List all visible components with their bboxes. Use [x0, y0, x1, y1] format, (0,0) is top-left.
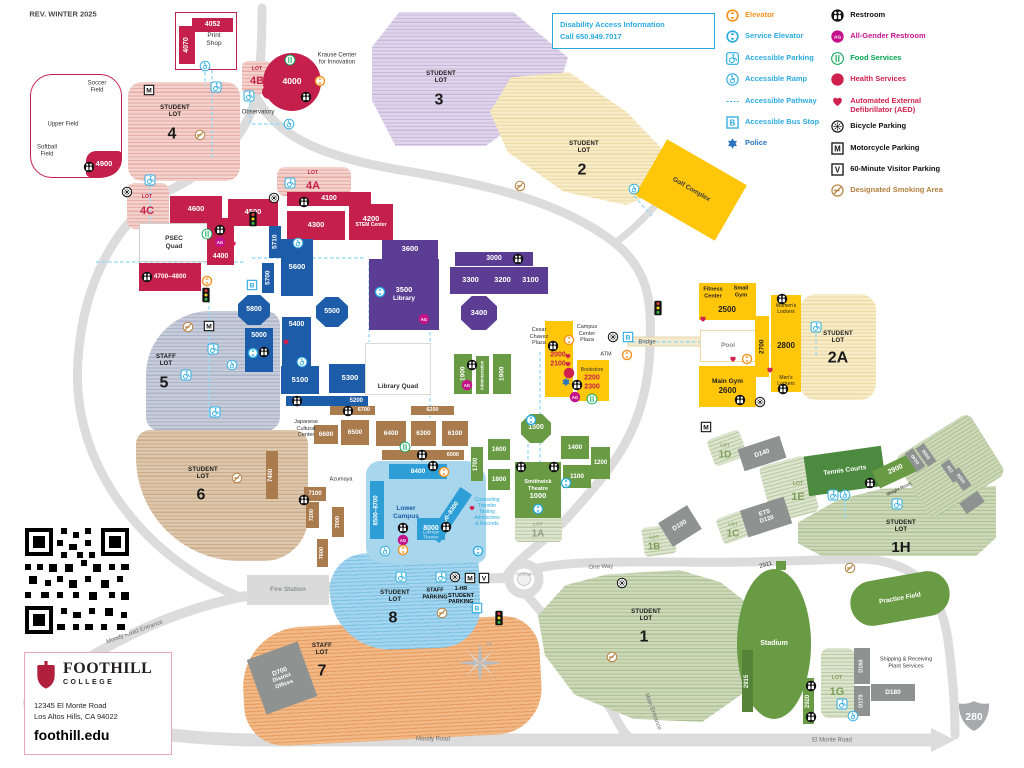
all-gender-restroom-icon: AG	[215, 237, 226, 248]
legend-item-label: Food Services	[850, 53, 901, 62]
restroom-icon	[831, 9, 844, 24]
legend-item-accessible-ramp: Accessible Ramp	[726, 74, 819, 88]
accessible-ramp-icon	[629, 184, 640, 195]
legend-item-label: Service Elevator	[745, 31, 803, 40]
accessible-parking-icon	[726, 52, 739, 67]
legend-item-label: Health Services	[850, 74, 906, 83]
label-print-shop: PrintShop	[206, 32, 221, 48]
building-2915: 2915	[742, 650, 753, 712]
label-building-2800: 2800	[777, 341, 795, 351]
building-d180: D180	[871, 684, 915, 701]
aed-icon	[469, 505, 476, 512]
svg-text:AG: AG	[464, 383, 470, 388]
building-1700: 1700	[471, 447, 483, 481]
building-1200: 1200	[591, 447, 610, 479]
accessible-bus-stop-icon: B	[623, 332, 634, 343]
lot-label: STUDENTLOT	[160, 105, 190, 119]
legend-item-police: Police	[726, 138, 819, 152]
elevator-icon	[439, 467, 450, 478]
food-services-icon	[285, 55, 296, 66]
building-6500: 6500	[341, 420, 369, 445]
service-elevator-icon	[375, 287, 386, 298]
label-revision: REV. WINTER 2025	[29, 9, 96, 18]
visitor-parking-icon: V	[479, 573, 490, 584]
label-counseling: CounselingTransferTestingAdmissions& Rec…	[474, 497, 500, 527]
legend-item-food-services: Food Services	[831, 53, 943, 67]
svg-text:M: M	[467, 575, 473, 582]
label-visitor-parking-1hr: 1-HRSTUDENTPARKING	[448, 586, 474, 606]
accessible-ramp-icon	[840, 490, 851, 501]
svg-text:AG: AG	[400, 538, 406, 543]
disability-info-line1: Disability Access Information	[560, 19, 707, 31]
restroom-icon	[735, 395, 746, 406]
lot-label: STAFFLOT	[156, 354, 176, 368]
food-services-icon	[587, 394, 598, 405]
legend-item-label: Accessible Pathway	[745, 96, 817, 105]
building-administration: Administration	[476, 356, 489, 394]
traffic-light-icon	[202, 287, 211, 303]
restroom-icon	[549, 462, 560, 473]
service-elevator-icon	[726, 30, 739, 45]
legend-item-label: Elevator	[745, 10, 775, 19]
map-legend: ElevatorService ElevatorAccessible Parki…	[726, 10, 943, 200]
building-1600: 1600	[488, 439, 510, 460]
building-7400: 7400	[266, 451, 278, 499]
label-fountain: Fountain	[516, 571, 534, 576]
college-url: foothill.edu	[34, 727, 162, 743]
label-krause-center: Krause Centerfor Innovation	[318, 53, 357, 68]
legend-item-restroom: Restroom	[831, 10, 943, 24]
all-gender-restroom-icon: AG	[831, 30, 844, 45]
label-bridge: Bridge	[638, 339, 655, 346]
college-sub: COLLEGE	[63, 679, 152, 686]
elevator-icon	[622, 350, 633, 361]
legend-item-label: Accessible Parking	[745, 53, 814, 62]
restroom-icon	[299, 197, 310, 208]
legend-item-health-services: Health Services	[831, 74, 943, 88]
smoking-area-icon	[183, 322, 194, 333]
svg-text:V: V	[835, 165, 841, 174]
lot-label-number: 1A	[532, 529, 545, 540]
svg-text:N: N	[487, 641, 491, 648]
college-address-2: Los Altos Hills, CA 94022	[34, 712, 162, 723]
accessible-parking-icon	[145, 175, 156, 186]
legend-item-label: Automated ExternalDefibrillator (AED)	[850, 96, 921, 115]
label-japanese-cultural-center: JapaneseCulturalCenter	[294, 419, 318, 439]
bicycle-parking-icon	[122, 187, 133, 198]
svg-text:B: B	[730, 118, 736, 127]
lot-label: LOT	[832, 676, 843, 682]
legend-item-label: Bicycle Parking	[850, 121, 906, 130]
legend-column-2: RestroomAGAll-Gender RestroomFood Servic…	[831, 10, 943, 200]
label-shipping-receiving: Shipping & ReceivingPlant Services	[880, 656, 932, 669]
accessible-ramp-icon	[284, 119, 295, 130]
label-upper-field: Upper Field	[47, 121, 78, 128]
restroom-icon	[777, 294, 788, 305]
food-services-icon	[202, 229, 213, 240]
restroom-icon	[398, 523, 409, 534]
building-fire-station: Fire Station	[247, 575, 329, 605]
restroom-icon	[215, 225, 226, 236]
legend-item-elevator: Elevator	[726, 10, 819, 24]
lot-label: STUDENTLOT	[426, 71, 456, 85]
smoking-area-icon	[195, 130, 206, 141]
accessible-parking-icon	[837, 699, 848, 710]
motorcycle-parking-icon: M	[204, 321, 215, 332]
accessible-ramp-icon	[293, 238, 304, 249]
accessible-parking-icon	[208, 344, 219, 355]
svg-text:B: B	[626, 334, 631, 341]
accessible-ramp-icon	[726, 73, 739, 88]
restroom-icon	[417, 450, 428, 461]
legend-item-bicycle-parking: Bicycle Parking	[831, 121, 943, 135]
restroom-icon	[428, 461, 439, 472]
elevator-icon	[398, 545, 409, 556]
police-icon	[726, 137, 739, 152]
elevator-icon	[202, 276, 213, 287]
svg-text:M: M	[834, 144, 841, 153]
college-name: FOOTHILL	[63, 661, 152, 677]
lot-label-number: 1D	[719, 450, 732, 461]
legend-item-motorcycle-parking: MMotorcycle Parking	[831, 143, 943, 157]
label-building-2500: 2500	[718, 305, 736, 315]
building-6200: 6200	[411, 406, 454, 415]
restroom-icon	[516, 462, 527, 473]
motorcycle-parking-icon: M	[831, 142, 844, 157]
label-small-gym: SmallGym	[734, 285, 749, 298]
traffic-light-icon	[654, 300, 663, 316]
service-elevator-icon	[533, 504, 544, 515]
restroom-icon	[548, 341, 559, 352]
bicycle-parking-icon	[269, 193, 280, 204]
building-1400: 1400	[561, 436, 589, 459]
legend-item-all-gender-restroom: AGAll-Gender Restroom	[831, 31, 943, 45]
service-elevator-icon	[473, 546, 484, 557]
accessible-ramp-icon	[227, 360, 238, 371]
compass-icon: N	[453, 639, 507, 685]
college-address-1: 12345 El Monte Road	[34, 701, 162, 712]
building-4200-stem: 4200STEM Center	[349, 204, 393, 240]
lot-label: LOT	[308, 171, 319, 177]
aed-icon	[565, 361, 572, 368]
label-staff-parking: STAFFPARKING	[423, 587, 448, 600]
accessible-parking-icon	[285, 178, 296, 189]
smoking-area-icon	[845, 563, 856, 574]
bicycle-parking-icon	[617, 578, 628, 589]
building-1800: 1800	[488, 469, 510, 490]
smoking-area-icon	[607, 652, 618, 663]
building-d160: D160	[854, 648, 870, 684]
aed-icon	[229, 240, 237, 248]
label-lohman-theatre: LohmanTheatre	[423, 530, 439, 541]
label-cesar-chavez-plaza: CesarChavezPlaza	[530, 327, 549, 347]
restroom-icon	[343, 406, 354, 417]
qr-code	[25, 528, 129, 639]
lot-label-number: 1E	[791, 491, 804, 503]
accessible-parking-icon	[210, 407, 221, 418]
legend-item-label: All-Gender Restroom	[850, 31, 925, 40]
svg-text:B: B	[475, 605, 480, 612]
elevator-icon	[726, 9, 739, 24]
label-moody-road: Moody Road	[416, 736, 450, 743]
lot-label: LOT	[649, 534, 659, 539]
building-library-quad: Library Quad	[365, 343, 431, 395]
building-7600: 7600	[317, 539, 328, 567]
lot-label-number: 5	[160, 375, 169, 392]
label-building-2000-2100: 20002100	[550, 351, 566, 368]
building-2911-square	[776, 561, 786, 570]
lot-label: STUDENTLOT	[569, 141, 599, 155]
accessible-bus-stop-icon: B	[726, 116, 739, 131]
svg-text:B: B	[250, 282, 255, 289]
smoking-area-icon	[437, 608, 448, 619]
building-main-gym-2600: Main Gym2600	[699, 366, 756, 407]
accessible-ramp-icon	[380, 546, 391, 557]
food-services-icon	[400, 442, 411, 453]
label-soccer-field: SoccerField	[88, 81, 107, 96]
svg-text:AG: AG	[572, 395, 578, 400]
legend-item-accessible-bus-stop: BAccessible Bus Stop	[726, 117, 819, 131]
accessible-parking-icon	[244, 91, 255, 102]
elevator-icon	[315, 76, 326, 87]
accessible-parking-icon	[211, 82, 222, 93]
accessible-ramp-icon	[200, 61, 211, 72]
all-gender-restroom-icon: AG	[570, 392, 581, 403]
building-5710: 5710	[269, 226, 281, 258]
legend-item-accessible-pathway: Accessible Pathway	[726, 96, 819, 110]
restroom-icon	[778, 384, 789, 395]
accessible-parking-icon	[811, 322, 822, 333]
label-softball-field: SoftballField	[37, 145, 57, 160]
accessible-parking-icon	[436, 572, 447, 583]
accessible-parking-icon	[892, 499, 903, 510]
restroom-icon	[292, 396, 303, 407]
restroom-icon	[441, 522, 452, 533]
building-4070: 4070	[179, 26, 195, 64]
building-7000: 7000	[332, 507, 344, 537]
food-services-icon	[831, 52, 844, 67]
aed-icon	[699, 315, 707, 323]
restroom-icon	[259, 347, 270, 358]
legend-item-service-elevator: Service Elevator	[726, 31, 819, 45]
label-fitness-center: FitnessCenter	[703, 286, 722, 299]
label-campus-center-plaza: CampusCenterPlaza	[577, 324, 597, 344]
building-observatory-dot	[262, 85, 277, 99]
legend-item-label: Restroom	[850, 10, 885, 19]
health-services-icon	[831, 73, 844, 88]
svg-text:AG: AG	[217, 240, 223, 245]
lot-label: LOT	[728, 521, 738, 526]
lot-label: STUDENTLOT	[631, 609, 661, 623]
restroom-icon	[572, 380, 583, 391]
legend-item-label: 60-Minute Visitor Parking	[850, 164, 940, 173]
lot-label-number: 1	[640, 629, 649, 646]
restroom-icon	[142, 272, 153, 283]
label-womens-lockers: Women'sLockers	[776, 303, 797, 315]
lot-label-number: 4A	[306, 180, 320, 192]
elevator-icon	[742, 354, 753, 365]
legend-column-1: ElevatorService ElevatorAccessible Parki…	[726, 10, 819, 200]
building-3400: 3400	[461, 296, 497, 330]
smoking-area-icon	[831, 184, 844, 199]
lot-label: STUDENTLOT	[188, 467, 218, 481]
motorcycle-parking-icon: M	[144, 85, 155, 96]
label-el-monte-road: El Monte Road	[812, 737, 852, 744]
building-4052: 4052	[192, 18, 233, 32]
svg-text:V: V	[482, 575, 487, 582]
college-logo-box: FOOTHILL COLLEGE 12345 El Monte Road Los…	[24, 652, 172, 755]
label-building-2200-2300: 22002300	[584, 374, 600, 391]
svg-text:280: 280	[965, 712, 982, 723]
building-5100: 5100	[281, 366, 319, 394]
legend-item-60-minute-visitor-parking: V60-Minute Visitor Parking	[831, 164, 943, 178]
svg-text:AG: AG	[834, 35, 842, 41]
restroom-icon	[467, 360, 478, 371]
building-4300: 4300	[287, 211, 345, 240]
motorcycle-parking-icon: M	[465, 573, 476, 584]
label-bookstore: Bookstore	[581, 367, 604, 373]
building-3100: 3100	[513, 267, 548, 294]
police-icon	[561, 377, 572, 388]
lot-label-number: 1H	[891, 539, 910, 555]
building-1900-b: 1900	[493, 354, 511, 394]
traffic-light-icon	[495, 610, 504, 626]
legend-item-label: Motorcycle Parking	[850, 143, 919, 152]
lot-label: STUDENTLOT	[823, 331, 853, 345]
highway-280-shield: 280	[957, 700, 991, 732]
lot-label-number: 4C	[140, 205, 154, 217]
accessible-parking-icon	[828, 490, 839, 501]
legend-item-label: Designated Smoking Area	[850, 185, 943, 194]
legend-item-label: Accessible Ramp	[745, 74, 807, 83]
accessible-parking-icon	[181, 370, 192, 381]
svg-text:M: M	[206, 323, 212, 330]
smoking-area-icon	[515, 181, 526, 192]
campus-map: { "meta":{"revision":"REV. WINTER 2025"}…	[0, 0, 1024, 768]
aed-icon	[282, 338, 290, 346]
aed-icon	[729, 355, 737, 363]
building-3600: 3600	[382, 240, 438, 259]
building-6100: 6100	[442, 421, 468, 446]
lot-label: LOT	[720, 442, 730, 447]
visitor-parking-icon: V	[831, 163, 844, 178]
building-7200: 7200	[306, 502, 319, 528]
lot-label: LOT	[142, 195, 153, 201]
label-observatory: Observatory	[242, 109, 275, 116]
aed-icon	[299, 58, 307, 66]
lot-label-number: 7	[318, 663, 327, 680]
all-gender-restroom-icon: AG	[462, 380, 473, 391]
building-8500-8700: 8500–8700	[370, 481, 384, 539]
building-5700: 5700	[262, 263, 274, 293]
service-elevator-icon	[561, 478, 572, 489]
accessible-ramp-icon	[848, 711, 859, 722]
svg-text:M: M	[703, 424, 709, 431]
lot-label-number: 6	[197, 487, 206, 504]
legend-item-label: Police	[745, 138, 767, 147]
bicycle-parking-icon	[608, 332, 619, 343]
lot-label-number: 2A	[828, 350, 848, 367]
legend-item-automated-external-defibrillator-aed: Automated ExternalDefibrillator (AED)	[831, 96, 943, 115]
aed-icon	[565, 353, 572, 360]
smoking-area-icon	[232, 473, 243, 484]
lot-label-number: 1B	[648, 542, 661, 553]
restroom-icon	[513, 254, 524, 265]
svg-text:M: M	[146, 87, 152, 94]
lot-label-number: 4B	[250, 75, 264, 87]
lot-label: STAFFLOT	[312, 643, 332, 657]
restroom-icon	[806, 681, 817, 692]
restroom-icon	[865, 478, 876, 489]
lot-label-number: 3	[435, 92, 444, 109]
lot-label: LOT	[533, 521, 543, 526]
restroom-icon	[806, 712, 817, 723]
service-elevator-icon	[248, 348, 259, 359]
lot-label-number: 2	[578, 162, 587, 179]
lot-label: LOT	[793, 482, 804, 488]
label-atm: ATM	[600, 352, 611, 359]
label-lower-campus: LowerCampus	[393, 505, 419, 521]
restroom-icon	[84, 162, 95, 173]
lot-label-number: 8	[389, 610, 398, 627]
accessible-pathway-icon	[726, 95, 739, 110]
bicycle-parking-icon	[831, 120, 844, 135]
motorcycle-parking-icon: M	[701, 422, 712, 433]
lot-label: STUDENTLOT	[380, 590, 410, 604]
legend-item-designated-smoking-area: Designated Smoking Area	[831, 185, 943, 199]
service-elevator-icon	[526, 415, 537, 426]
accessible-parking-icon	[396, 572, 407, 583]
aed-icon	[831, 95, 844, 110]
acorn-logo-icon	[34, 661, 58, 696]
disability-info-line2: Call 650.949.7017	[560, 31, 707, 43]
label-azumaya: Azumaya	[330, 477, 353, 484]
bicycle-parking-icon	[755, 397, 766, 408]
building-psec-quad: PSECQuad	[139, 223, 209, 262]
accessible-bus-stop-icon: B	[247, 280, 258, 291]
label-one-way: One Way	[588, 564, 613, 573]
lot-label-number: 1C	[727, 529, 740, 540]
restroom-icon	[301, 92, 312, 103]
bicycle-parking-icon	[450, 572, 461, 583]
all-gender-restroom-icon: AG	[419, 314, 430, 325]
traffic-light-icon	[249, 211, 258, 227]
lot-label-number: 1G	[830, 686, 845, 698]
legend-item-accessible-parking: Accessible Parking	[726, 53, 819, 67]
lot-label-number: 4	[168, 126, 177, 143]
legend-item-label: Accessible Bus Stop	[745, 117, 819, 126]
aed-icon	[766, 366, 774, 374]
restroom-icon	[299, 495, 310, 506]
building-6300: 6300	[411, 421, 436, 446]
elevator-icon	[564, 335, 575, 346]
accessible-ramp-icon	[297, 357, 308, 368]
disability-info-box: Disability Access Information Call 650.9…	[552, 13, 715, 49]
svg-text:AG: AG	[421, 317, 427, 322]
accessible-bus-stop-icon: B	[472, 603, 483, 614]
lot-label: STUDENTLOT	[886, 520, 916, 534]
lot-label: LOT	[252, 67, 263, 73]
